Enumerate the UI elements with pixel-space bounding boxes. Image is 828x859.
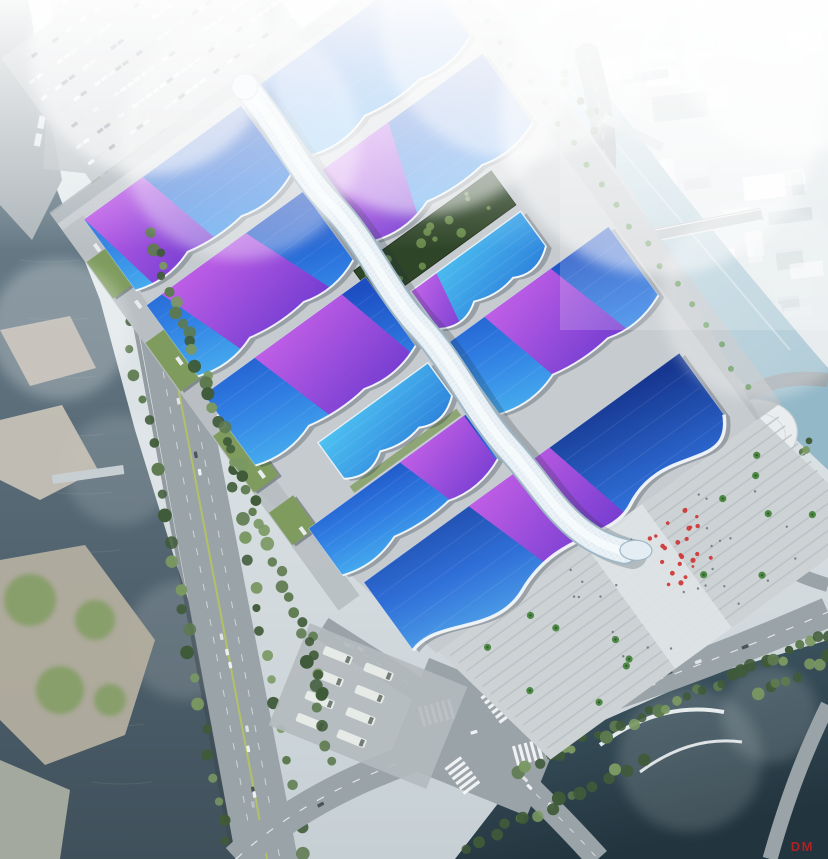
aerial-city-rendering: DM <box>0 0 828 859</box>
image-frame: DM <box>0 0 828 859</box>
spine-tail <box>620 540 653 561</box>
watermark: DM <box>791 839 814 854</box>
